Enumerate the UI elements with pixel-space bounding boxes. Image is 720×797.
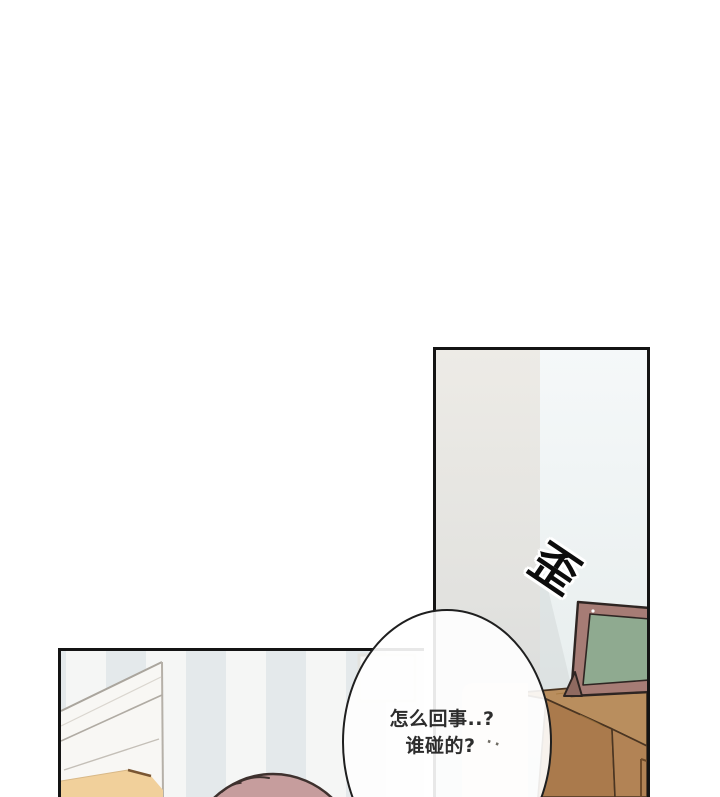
bubble-text-line2: 谁碰的?	[393, 735, 488, 758]
comic-page: 歪 怎么回事..? 谁碰的? ··	[0, 0, 720, 797]
frame-photo	[583, 614, 647, 685]
character-head	[183, 774, 363, 797]
frame-nail-highlight	[591, 609, 594, 612]
trim-edge-right	[162, 662, 163, 797]
bubble-text-line1: 怎么回事..?	[384, 708, 500, 731]
